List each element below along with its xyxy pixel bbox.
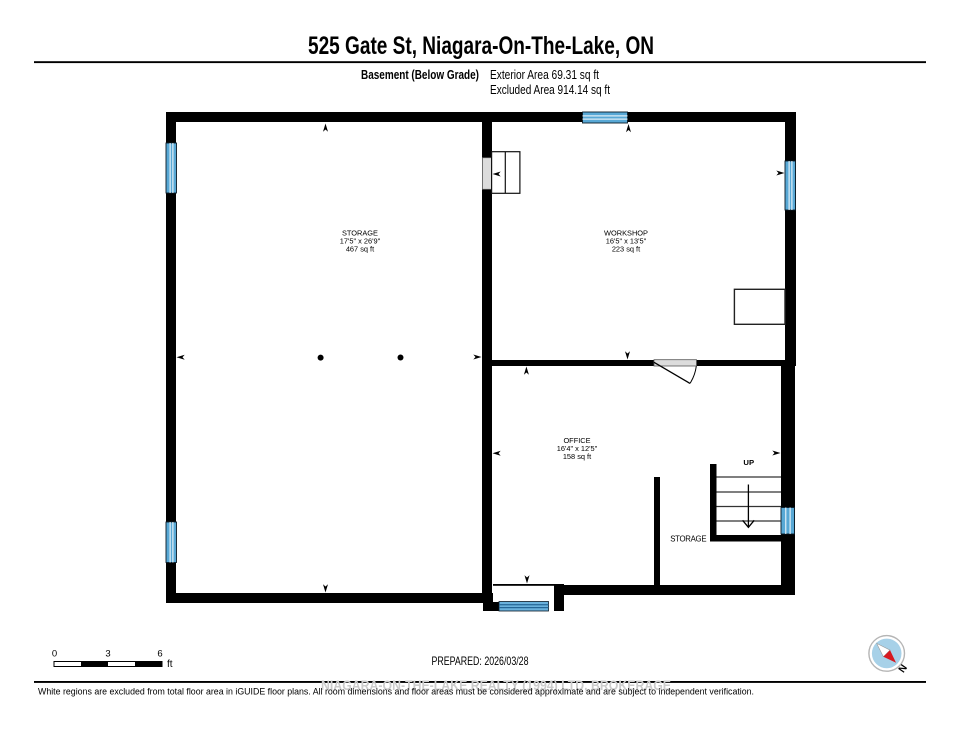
svg-text:White regions are excluded fro: White regions are excluded from total fl… [38, 687, 754, 698]
svg-text:ft: ft [167, 659, 173, 670]
svg-text:0: 0 [52, 649, 57, 660]
svg-text:UP: UP [743, 458, 754, 467]
svg-text:6: 6 [157, 649, 162, 660]
svg-text:PREPARED: 2026/03/28: PREPARED: 2026/03/28 [432, 654, 529, 668]
svg-text:467 sq ft: 467 sq ft [346, 244, 374, 253]
svg-text:Basement (Below Grade): Basement (Below Grade) [361, 68, 479, 82]
svg-text:223 sq ft: 223 sq ft [612, 244, 640, 253]
svg-text:STORAGE: STORAGE [670, 535, 706, 544]
svg-text:158 sq ft: 158 sq ft [563, 452, 591, 461]
svg-text:Exterior Area 69.31 sq ft: Exterior Area 69.31 sq ft [490, 68, 599, 82]
svg-text:3: 3 [105, 649, 110, 660]
svg-text:525 Gate St, Niagara-On-The-La: 525 Gate St, Niagara-On-The-Lake, ON [308, 32, 654, 60]
svg-text:Excluded Area 914.14 sq ft: Excluded Area 914.14 sq ft [490, 83, 610, 97]
